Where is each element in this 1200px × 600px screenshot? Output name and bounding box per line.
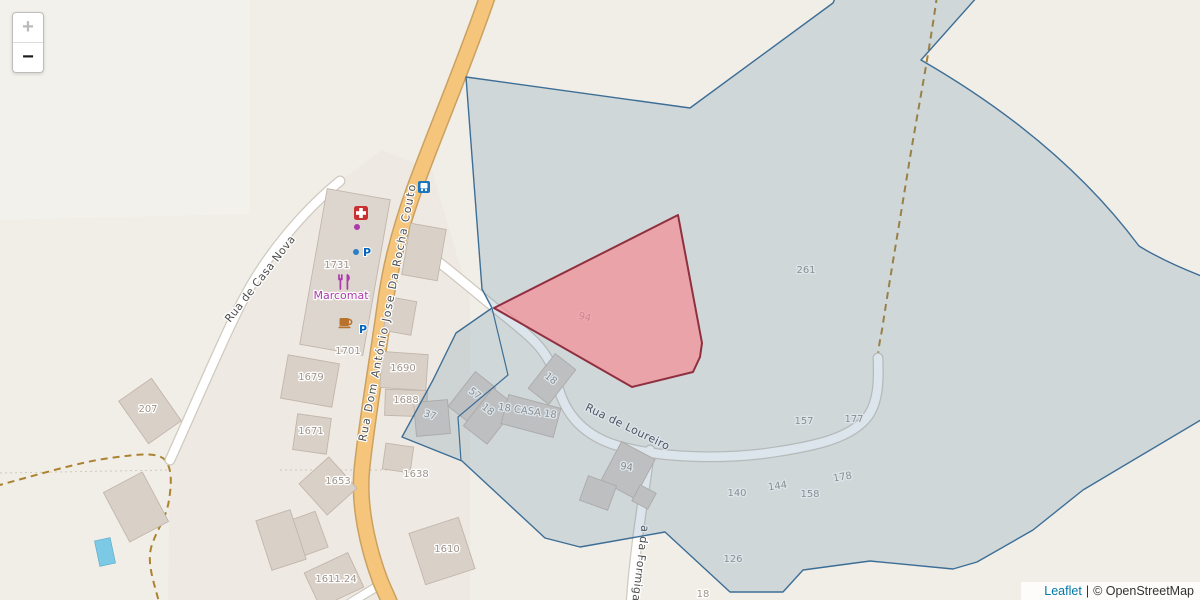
parking-icon: P (363, 246, 371, 259)
parking-icon: P (359, 323, 367, 336)
parking-node-icon (353, 249, 359, 255)
housenumber-label: 207 (138, 404, 157, 415)
shop-name-label: Marcomat (313, 289, 369, 302)
ukraine-flag-icon (1027, 587, 1040, 596)
housenumber-label: 1638 (403, 469, 428, 480)
housenumber-label: 1701 (335, 346, 360, 357)
attribution-bar: Leaflet | © OpenStreetMap (1021, 582, 1200, 600)
housenumber-label: 1731 (324, 260, 349, 271)
zoom-out-button[interactable]: − (13, 43, 43, 72)
map-canvas[interactable]: 2071731170116791690168816711653163816101… (0, 0, 1200, 600)
housenumber-label: 1611.24 (315, 574, 356, 585)
shop-node-icon (354, 224, 360, 230)
housenumber-label: 1690 (390, 363, 415, 374)
housenumber-label: 1610 (434, 544, 459, 555)
zoom-control: + − (12, 12, 44, 73)
housenumber-label: 18 (697, 589, 710, 600)
housenumber-label: 1653 (325, 476, 350, 487)
housenumber-label: 1679 (298, 372, 323, 383)
map-viewport[interactable]: 2071731170116791690168816711653163816101… (0, 0, 1200, 600)
housenumber-label: 1688 (393, 395, 418, 406)
leaflet-link[interactable]: Leaflet (1044, 584, 1082, 598)
housenumber-label: 1671 (298, 426, 323, 437)
openstreetmap-link[interactable]: © OpenStreetMap (1093, 584, 1194, 598)
pharmacy-icon (354, 206, 368, 220)
zoom-in-button[interactable]: + (13, 13, 43, 42)
bus-stop-icon (418, 181, 430, 193)
attribution-separator: | (1086, 584, 1089, 598)
